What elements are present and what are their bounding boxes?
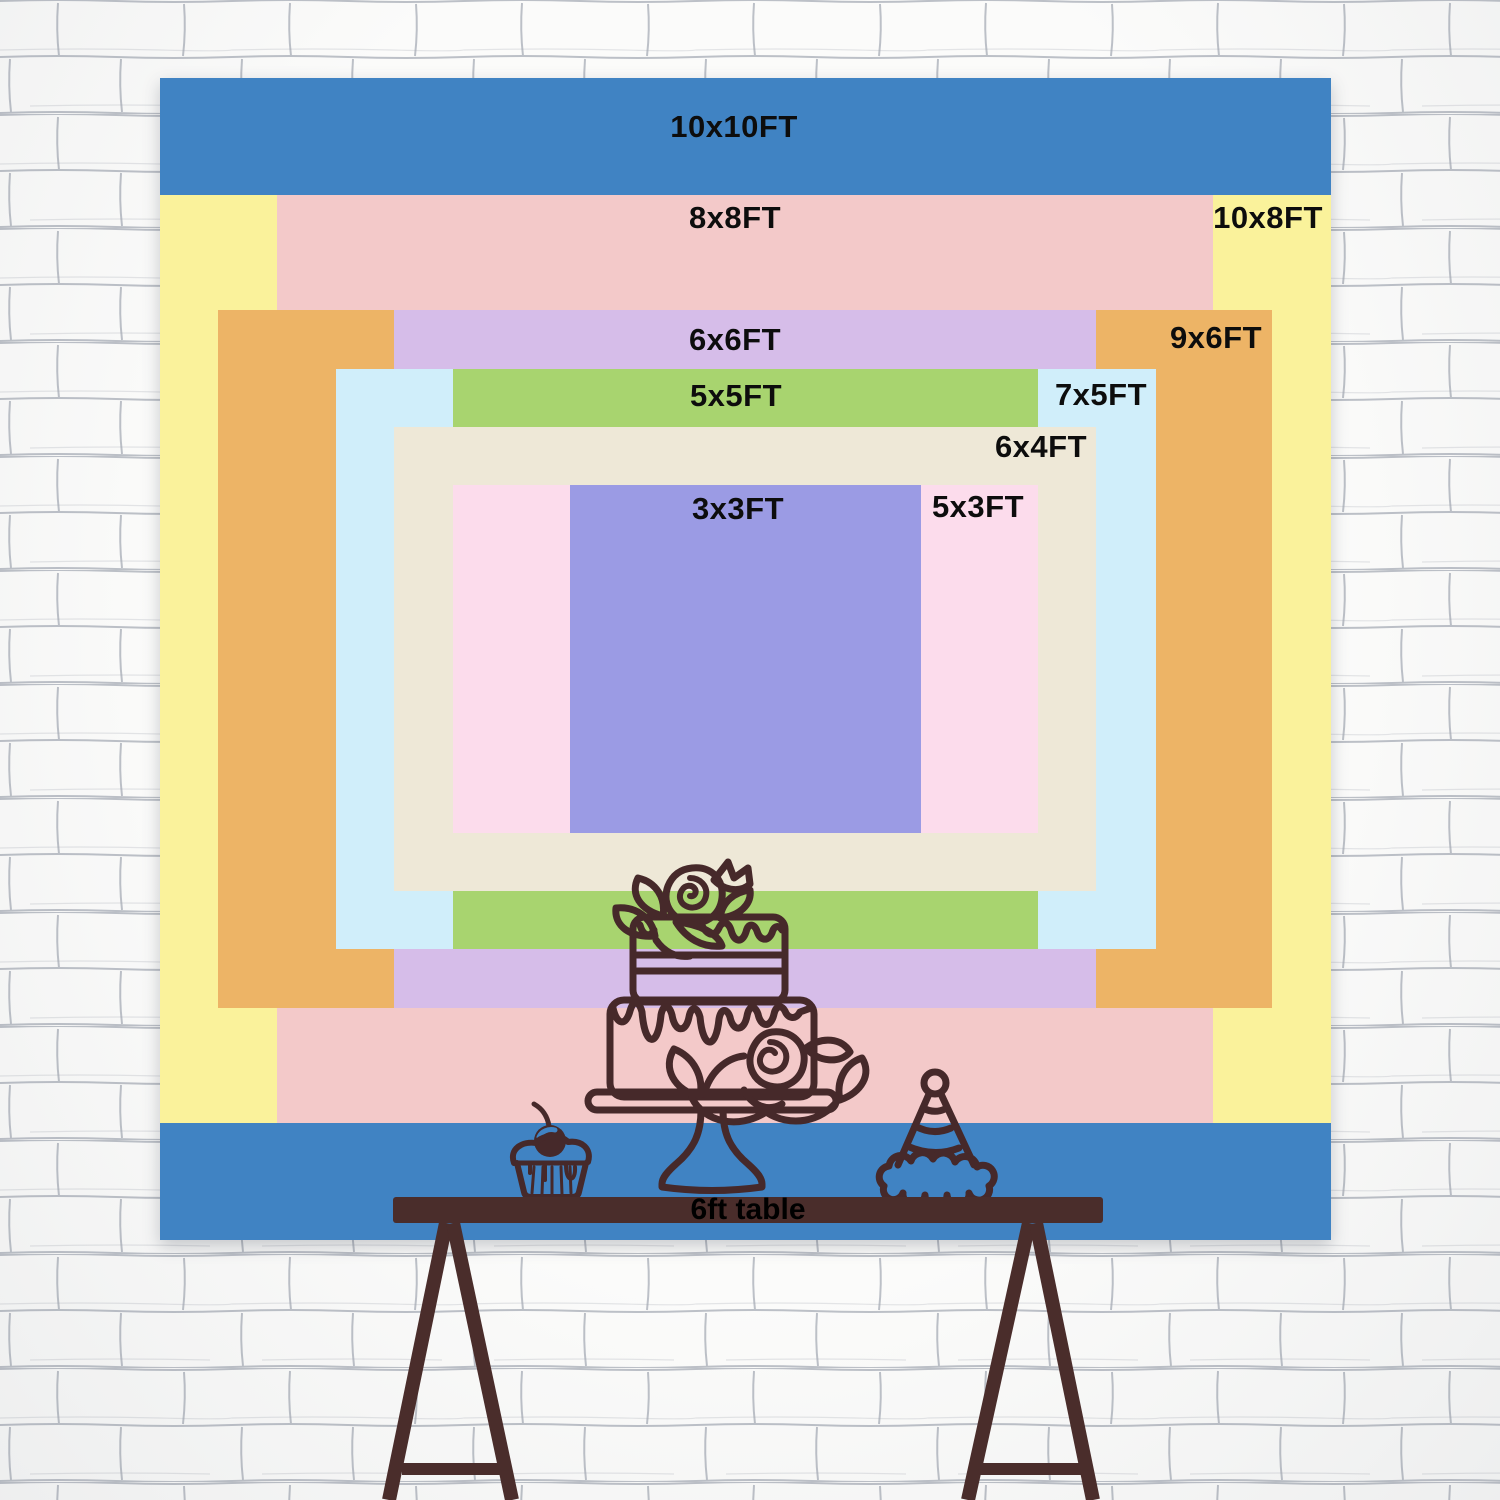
party-hat-icon <box>879 1072 994 1206</box>
table-legs <box>389 1223 1093 1500</box>
backdrop-size-chart-scene: 10x10FT 8x8FT 10x8FT 6x6FT 9x6FT 5x5FT 7… <box>0 0 1500 1500</box>
birthday-cake-icon <box>588 862 866 1191</box>
table-size-label: 6ft table <box>690 1193 805 1227</box>
cupcake-icon <box>513 1104 589 1197</box>
decorations-layer <box>0 0 1500 1500</box>
